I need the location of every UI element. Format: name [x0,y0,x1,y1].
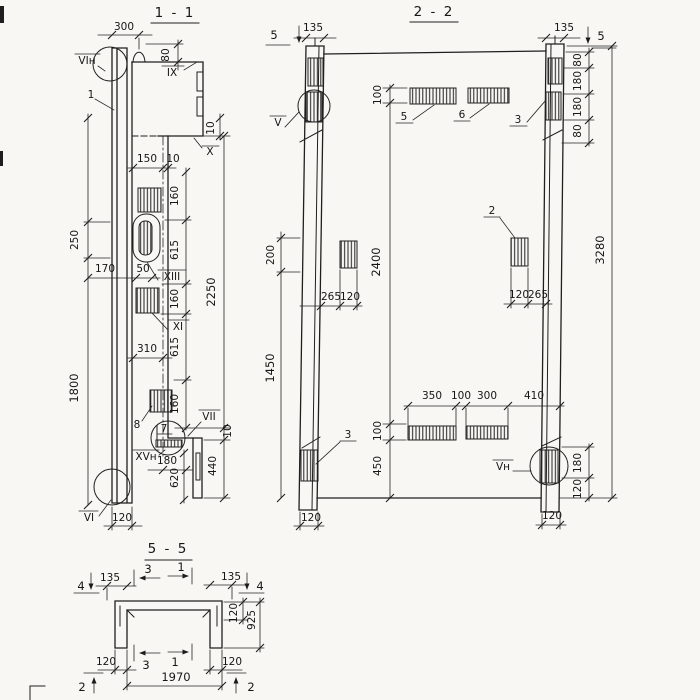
dim-170: 170 [95,263,115,275]
dim-120-bottom: 120 [112,512,132,524]
dim-250: 250 [69,230,81,250]
section-5-5-dimensions: 135 135 120 925 120 120 [96,571,264,690]
dim-10-step: 10 [166,153,179,165]
drawing-sheet: 1 - 1 3 [0,0,700,700]
engineering-drawing-canvas: 1 - 1 3 [0,0,700,700]
dim-300: 300 [114,21,134,33]
section-1-1-outline [93,47,203,505]
dim-80-b: 80 [572,124,584,137]
dim-135-right: 135 [554,22,574,34]
dim-50: 50 [136,263,149,275]
cut-marker-2-left: 2 [78,680,85,694]
dim-160-c: 160 [169,394,181,414]
section-1-1: 1 - 1 3 [67,5,234,530]
cut-marker-5-top-right: 5 [597,29,604,43]
dim-135-left: 135 [100,572,120,584]
dim-450: 450 [372,456,384,476]
item-label-7: 7 [161,423,168,435]
dim-100-mid: 100 [451,390,471,402]
dim-120-left: 120 [340,291,360,303]
dim-2400: 2400 [369,247,383,276]
dim-100-bottom: 100 [372,421,384,441]
dim-180: 180 [157,455,177,467]
dim-160-a: 160 [169,186,181,206]
dim-265-right: 265 [528,289,548,301]
dim-135-left: 135 [303,22,323,34]
item-label-8: 8 [134,419,141,431]
dim-80-a: 80 [572,53,584,66]
item-label-5: 5 [401,111,408,123]
dim-10-head: 10 [205,121,217,134]
detail-label-xi: XI [173,321,183,333]
detail-circle-vi-n [93,47,127,81]
detail-label-xiii: XIII [164,271,180,283]
dim-620: 620 [169,468,181,488]
dim-180-a: 180 [572,71,584,91]
cut-marker-1-top: 1 [177,560,184,574]
item-label-3-bottom: 3 [345,429,352,441]
dim-10-vii: 10 [222,424,234,437]
section-1-1-title: 1 - 1 [155,5,196,21]
dim-925: 925 [246,610,258,630]
cut-marker-1-bottom: 1 [171,655,178,669]
dim-1450: 1450 [263,353,277,382]
detail-label-vi: VI [84,512,94,524]
dim-80: 80 [160,48,172,61]
dim-3280: 3280 [593,235,607,264]
cut-marker-3-top: 3 [144,562,151,576]
item-label-3-top: 3 [515,114,522,126]
dim-1800: 1800 [67,373,81,402]
cut-marker-2-right: 2 [247,680,254,694]
cut-marker-4-right: 4 [256,579,263,593]
dim-310: 310 [137,343,157,355]
cut-marker-3-bottom: 3 [142,658,149,672]
dim-2250: 2250 [204,277,218,306]
dim-1970: 1970 [161,670,190,684]
item-label-6: 6 [459,109,466,121]
item-label-1: 1 [88,89,95,101]
dim-120-col-left: 120 [301,512,321,524]
detail-label-xv-n: XVн [135,451,156,463]
cut-marker-5-top-left: 5 [270,28,277,42]
scan-artifacts [0,6,45,700]
dim-120-bottom-right: 120 [222,656,242,668]
section-5-5-title: 5 - 5 [148,541,189,557]
cut-marker-4-left: 4 [77,579,84,593]
detail-label-v: V [274,117,282,129]
dim-200: 200 [265,245,277,265]
dim-615-a: 615 [169,240,181,260]
detail-label-ix: IX [167,67,177,79]
section-5-5: 5 - 5 4 4 3 1 3 1 2 [74,541,264,694]
dim-160-b: 160 [169,289,181,309]
dim-615-b: 615 [169,337,181,357]
section-2-2-outline [298,36,568,512]
dim-120-right: 120 [509,289,529,301]
dim-135-right: 135 [221,571,241,583]
detail-label-v-n: Vн [496,461,510,473]
detail-label-x: X [206,146,213,158]
dim-180-b: 180 [572,97,584,117]
dim-120-col-right: 120 [542,510,562,522]
dim-350: 350 [422,390,442,402]
section-2-2-title: 2 - 2 [414,4,455,20]
dim-410: 410 [524,390,544,402]
dim-120-bottom-left: 120 [96,656,116,668]
dim-265-left: 265 [321,291,341,303]
dim-440: 440 [207,456,219,476]
dim-150: 150 [137,153,157,165]
dim-120-right: 120 [228,603,240,623]
section-5-5-outline [115,601,222,648]
item-label-2: 2 [489,205,496,217]
dim-300: 300 [477,390,497,402]
detail-label-vi-n: VIн [78,55,95,67]
section-2-2: 2 - 2 5 [263,4,617,530]
dim-180-c: 180 [572,453,584,473]
dim-100-top: 100 [372,85,384,105]
dim-120-c: 120 [572,479,584,499]
detail-label-vii: VII [202,411,215,423]
